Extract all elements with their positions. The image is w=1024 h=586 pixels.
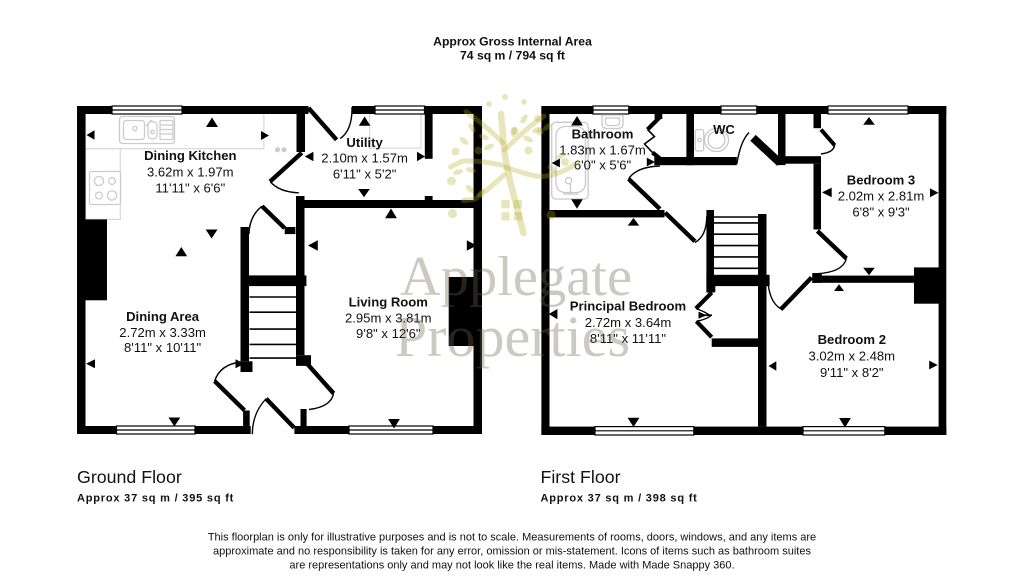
svg-text:8'11" x 10'11": 8'11" x 10'11" [124,340,202,355]
svg-text:are representations only and m: are representations only and may not loo… [289,560,734,572]
svg-text:This floorplan is only for ill: This floorplan is only for illustrative … [208,531,816,543]
svg-text:Approx Gross Internal Area: Approx Gross Internal Area [433,35,592,49]
svg-text:1.83m x 1.67m: 1.83m x 1.67m [559,143,646,158]
svg-text:Applegate: Applegate [400,246,632,308]
svg-text:First Floor: First Floor [541,467,621,487]
svg-text:Bedroom 2: Bedroom 2 [818,332,886,347]
svg-text:2.72m x 3.33m: 2.72m x 3.33m [119,325,206,340]
svg-text:Utility: Utility [346,135,383,150]
svg-text:3.62m x 1.97m: 3.62m x 1.97m [147,164,234,179]
svg-text:Properties: Properties [395,304,630,369]
svg-text:Bedroom 3: Bedroom 3 [847,173,915,188]
svg-text:2.02m x 2.81m: 2.02m x 2.81m [838,189,925,204]
svg-text:11'11" x 6'6": 11'11" x 6'6" [155,181,225,196]
svg-text:Dining Kitchen: Dining Kitchen [144,148,236,163]
svg-text:2.10m x 1.57m: 2.10m x 1.57m [321,151,408,166]
svg-text:3.02m x 2.48m: 3.02m x 2.48m [808,349,895,364]
svg-text:74 sq m / 794 sq ft: 74 sq m / 794 sq ft [460,49,565,63]
svg-text:6'11" x 5'2": 6'11" x 5'2" [333,166,397,181]
svg-text:Bathroom: Bathroom [572,127,634,142]
svg-text:WC: WC [713,122,735,137]
svg-text:9'11" x 8'2": 9'11" x 8'2" [820,365,884,380]
svg-text:Approx 37 sq m / 398 sq ft: Approx 37 sq m / 398 sq ft [541,493,698,505]
svg-text:approximate and no responsibil: approximate and no responsibility is tak… [213,546,811,558]
svg-text:Approx 37 sq m / 395 sq ft: Approx 37 sq m / 395 sq ft [77,493,234,505]
svg-text:Dining Area: Dining Area [126,309,200,324]
svg-text:Ground Floor: Ground Floor [77,467,182,487]
svg-text:6'0" x 5'6": 6'0" x 5'6" [574,158,632,173]
svg-text:6'8" x 9'3": 6'8" x 9'3" [852,205,910,220]
